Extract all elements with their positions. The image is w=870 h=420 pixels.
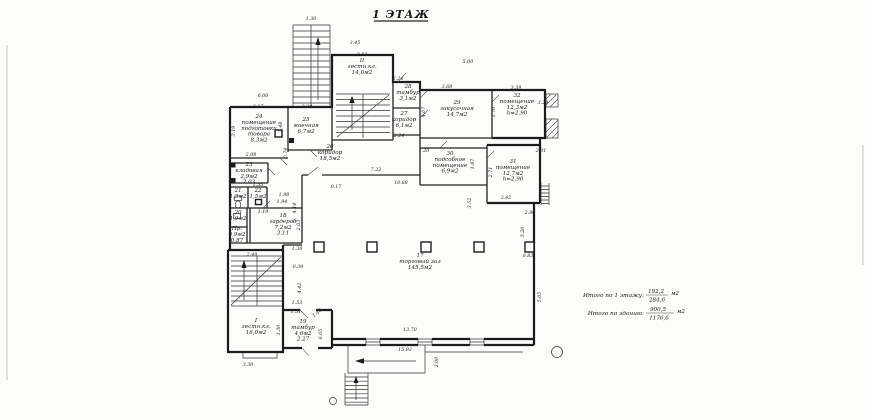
room-label-17: 17торговый зал145,5м2: [399, 253, 441, 271]
room-label-30: 30подсобноепомещение6,9м2: [433, 151, 468, 175]
room-label-21: 211,3м2: [229, 188, 247, 200]
floor-total-denominator: 284,6: [648, 298, 665, 304]
dimension-label: 0.83: [523, 253, 534, 259]
dimension-label: 0.39: [293, 264, 304, 270]
dimension-label: 3.52: [467, 198, 473, 209]
dimension-label: 2.00: [434, 357, 440, 369]
dimension-label: 4.14: [292, 203, 298, 215]
room-label-25: 25моечная6,7м2: [293, 117, 319, 135]
dimension-label: 3.19: [231, 126, 237, 137]
room-label-32: 32помещение12,3м2h=2.90: [500, 93, 535, 117]
room-label-II: IIлестн.кл.14,0м2: [347, 58, 377, 76]
dimension-label: 1.30: [276, 325, 282, 336]
building-total-unit: м2: [677, 309, 685, 315]
floor-total-label: Итого по 1 этажу:: [582, 293, 644, 299]
dimension-label: 2.48: [278, 122, 284, 134]
exit-direction-arrow-icon: [355, 358, 364, 363]
building-total-numerator: 900,5: [650, 307, 666, 313]
dimension-label: 1.87: [470, 158, 476, 170]
dimension-label: 0.17: [331, 184, 343, 190]
dimension-label: 1.70: [491, 107, 497, 118]
dimension-label: 1.53: [292, 300, 303, 306]
room-label-I: Iлестн.кл.16,0м2: [241, 318, 271, 336]
equipment-symbol: [289, 138, 294, 143]
dimension-labels: 1.303.452.525.002.243.683.393.296.003.17…: [231, 16, 548, 368]
floor-plan-drawing: 1 ЭТАЖ: [0, 0, 870, 420]
dimension-label: 2.08: [245, 152, 257, 158]
room-label-22: 221,5м2: [249, 188, 267, 200]
dimension-label: 4.07: [421, 106, 427, 119]
dimension-label: 5.05: [537, 292, 543, 303]
dimension-label: 3.20: [520, 227, 526, 238]
dimension-label: 3.45: [350, 40, 361, 46]
dimension-label: 2.29: [301, 104, 313, 110]
floor-total-unit: м2: [671, 291, 679, 297]
building-total-denominator: 1176,6: [649, 316, 669, 322]
room-label-20: 201,9м2: [229, 210, 247, 222]
dimension-label: 2.49: [246, 252, 258, 258]
exterior-top-stair: [293, 25, 330, 107]
dimension-label: 5.00: [463, 59, 474, 65]
room-label-19: 19тамбур4,6м22.27: [291, 319, 315, 343]
dimension-label: 1.94: [277, 199, 288, 205]
building-total-label: Итого по зданию:: [587, 311, 644, 317]
room-label-28: 28тамбур3,1м2: [396, 84, 420, 102]
dimension-label: 1.38: [292, 246, 303, 252]
survey-point-circle: [552, 347, 563, 358]
dimension-label: 6.05: [318, 329, 324, 340]
dimension-label: 0.74: [283, 148, 289, 159]
dimension-label: 3.29: [538, 100, 549, 106]
dimension-label: 2.24: [392, 76, 404, 82]
dimension-label: 1.19: [258, 209, 269, 215]
dimension-label: 3.30: [243, 362, 254, 368]
room-label-26: 26коридор18,5м2: [318, 144, 343, 162]
dimension-label: 1.20: [419, 148, 430, 154]
dimension-label: 1.51: [291, 309, 302, 315]
room-label-24: 24помещениеподготовкитовара8,3м2: [241, 114, 277, 144]
scan-edge-lines: [7, 45, 863, 380]
dimension-label: 6.00: [258, 93, 269, 99]
dimension-label: 4.42: [297, 283, 303, 295]
wall-niche-symbol: [231, 163, 236, 168]
room-label-29: 29закусочная14,7м2: [440, 100, 474, 118]
dimension-label: 2.80: [524, 210, 536, 216]
dimension-label: 2.03: [296, 220, 302, 232]
dimension-label: 1.30: [306, 16, 317, 22]
dimension-label: 3.17: [253, 104, 265, 110]
wall-niche-symbol: [231, 178, 236, 183]
dimension-label: 2.71: [488, 167, 494, 179]
stair-room-I: [231, 256, 282, 358]
hall-columns: [314, 242, 534, 252]
dimension-label: 2.01: [535, 148, 547, 154]
dimension-label: 15.93: [398, 347, 412, 353]
dimension-label: 1.98: [279, 192, 290, 198]
survey-point-circle: [330, 398, 337, 405]
dimension-label: 7.22: [371, 167, 382, 173]
room-label-31: 31помещение12,7м2h=2.90: [496, 159, 531, 183]
exterior-bottom-stair: [330, 373, 369, 405]
dimension-label: 10.88: [394, 180, 408, 186]
page-title: 1 ЭТАЖ: [372, 8, 430, 21]
dimension-label: 3.39: [511, 85, 522, 91]
area-totals: Итого по 1 этажу: 192,2 284,6 м2 Итого п…: [582, 289, 685, 322]
equipment-symbol: [256, 200, 262, 205]
toilet-icon: [235, 201, 241, 208]
stair-direction-arrow-icon: [316, 37, 321, 45]
room-label-Пр.: Пр.0,9м20.87: [228, 226, 246, 244]
dimension-label: 13.70: [403, 327, 417, 333]
dimension-label: 2.24: [393, 133, 405, 139]
dimension-label: 2.52: [356, 52, 368, 58]
floor-total-numerator: 192,2: [648, 289, 664, 295]
dimension-label: 3.42: [501, 195, 512, 201]
dimension-label: 3.68: [442, 84, 453, 90]
fire-ladder-icon: [541, 183, 549, 205]
dimension-label: 1.55: [253, 182, 264, 188]
room-label-18: 18гардероб7,2м23.11: [270, 213, 298, 237]
stair-room-II: [336, 94, 390, 138]
interior-walls: [230, 55, 492, 245]
floor-plan-page: 1 ЭТАЖ: [0, 0, 870, 420]
room-label-27: 27коридор6,1м2: [392, 111, 417, 129]
